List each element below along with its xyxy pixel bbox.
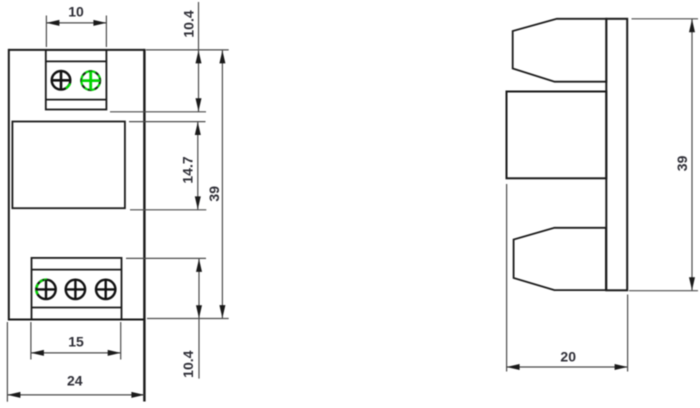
svg-text:10.4: 10.4 <box>180 350 196 377</box>
svg-text:20: 20 <box>560 349 576 365</box>
svg-text:14.7: 14.7 <box>180 156 196 183</box>
svg-text:10: 10 <box>68 4 84 20</box>
svg-text:10.4: 10.4 <box>181 10 197 37</box>
svg-text:24: 24 <box>67 373 83 389</box>
svg-text:39: 39 <box>206 186 222 202</box>
svg-text:39: 39 <box>674 155 690 171</box>
svg-text:15: 15 <box>68 334 84 350</box>
